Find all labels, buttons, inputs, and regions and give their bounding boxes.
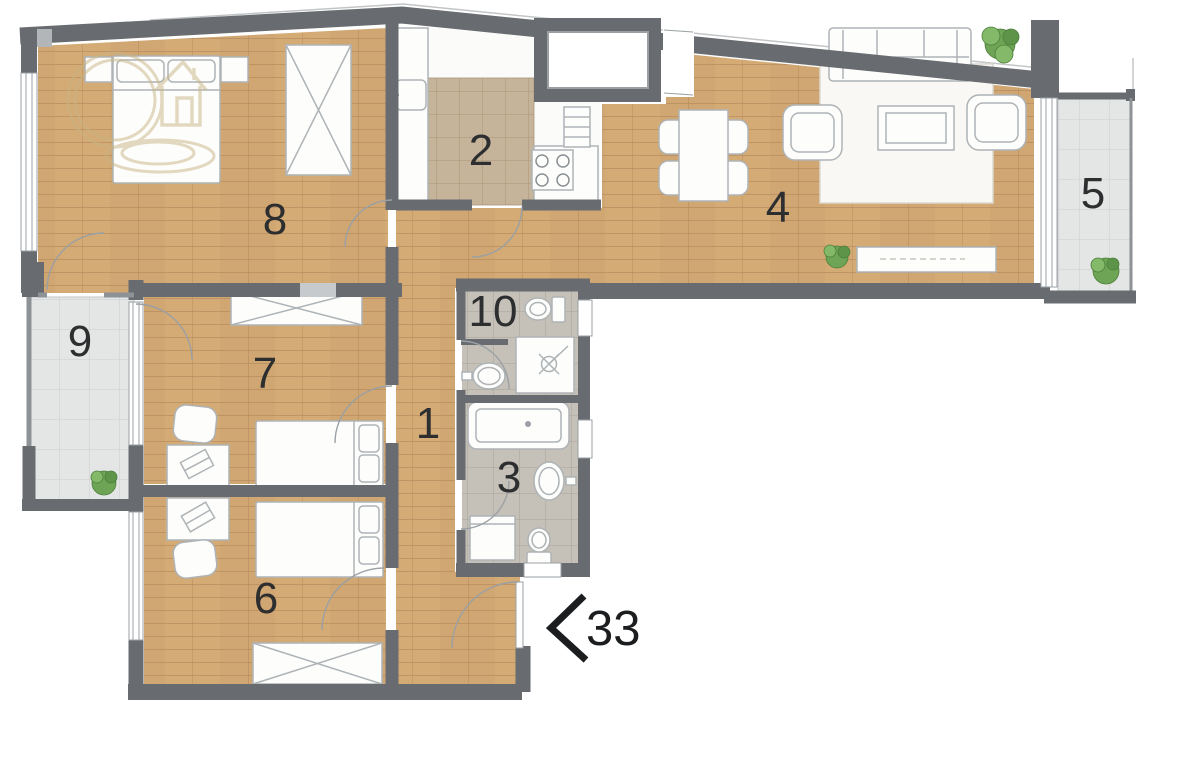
window (129, 512, 143, 640)
nightstand (221, 57, 248, 82)
room-label-6: 6 (254, 574, 278, 623)
coffee-table (878, 106, 954, 150)
armchair (783, 105, 842, 160)
bedroom-8-furniture (85, 45, 351, 183)
pillow (359, 425, 379, 452)
entry-door-leaf (516, 582, 523, 648)
window (21, 73, 37, 251)
plant (982, 27, 1019, 63)
chevron-left-icon (551, 596, 586, 660)
desk-chair (172, 539, 218, 580)
entrance-number: 33 (586, 602, 641, 656)
room-label-3: 3 (497, 453, 521, 502)
room-label-5: 5 (1081, 169, 1105, 218)
wall-block (22, 262, 44, 297)
desk-chair (172, 404, 218, 444)
floor-plan-canvas: 8 2 4 5 9 7 1 10 3 6 33 (0, 0, 1200, 778)
wardrobe (286, 45, 351, 175)
shaft-window (548, 32, 648, 88)
wall-niche (300, 283, 336, 297)
shower (516, 337, 574, 393)
entry-threshold (524, 563, 561, 577)
wall-niche (578, 420, 592, 458)
wall-niche (578, 300, 592, 336)
plant (91, 471, 117, 495)
floor-plan-page: 8 2 4 5 9 7 1 10 3 6 33 (0, 0, 1200, 778)
balcony-door-window (1041, 98, 1057, 287)
wall-opening (663, 27, 694, 97)
room-label-8: 8 (263, 195, 287, 244)
room-label-2: 2 (469, 126, 493, 175)
pillow (359, 537, 379, 564)
wall-block (1031, 20, 1059, 98)
room-label-4: 4 (766, 183, 790, 232)
dining-table (679, 110, 728, 201)
room-label-10: 10 (469, 287, 518, 336)
room-label-1: 1 (416, 399, 440, 448)
kitchen-shelf (564, 107, 590, 147)
wardrobe (253, 643, 382, 684)
kitchen-sink (396, 80, 426, 110)
toilet (527, 528, 551, 564)
pillow (359, 455, 379, 482)
room-label-9: 9 (68, 317, 92, 366)
window (129, 302, 143, 445)
tv-stand (857, 247, 996, 272)
stove (532, 150, 573, 190)
washing-machine (470, 516, 515, 560)
room-label-7: 7 (253, 349, 277, 398)
bathtub (468, 402, 569, 449)
toilet (525, 297, 565, 322)
entrance-marker: 33 (551, 596, 641, 660)
pillow (359, 506, 379, 533)
armchair (967, 95, 1026, 150)
